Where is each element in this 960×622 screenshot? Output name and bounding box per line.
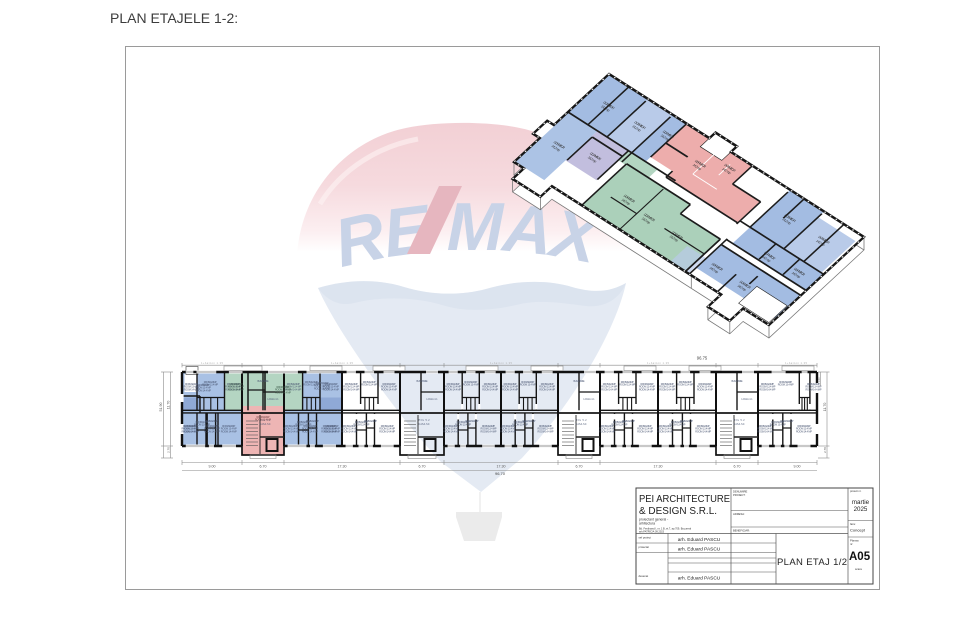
svg-text:1.40: 1.40 (817, 377, 821, 383)
svg-text:BENEFICIAR:: BENEFICIAR: (733, 529, 750, 533)
svg-text:51.90: 51.90 (159, 403, 163, 412)
svg-text:ROOM 14.4 MP: ROOM 14.4 MP (639, 388, 655, 391)
svg-text:2025: 2025 (854, 506, 868, 513)
svg-text:ROOM 14.4 MP: ROOM 14.4 MP (697, 388, 713, 391)
svg-text:ROOM 13.4 MP: ROOM 13.4 MP (512, 424, 528, 427)
svg-text:1+balcon 1.35: 1+balcon 1.35 (490, 361, 513, 365)
svg-text:arh. Eduard PASCU: arh. Eduard PASCU (678, 546, 721, 552)
svg-text:ROOM 14.4 MP: ROOM 14.4 MP (204, 430, 220, 433)
svg-text:ROOM 12.4 MP: ROOM 12.4 MP (364, 420, 377, 423)
svg-text:ROOM 14.4 MP: ROOM 14.4 MP (379, 430, 395, 433)
svg-text:ROOM 14.4 MP: ROOM 14.4 MP (757, 430, 773, 433)
svg-text:6.70: 6.70 (260, 465, 267, 469)
svg-text:96.75: 96.75 (697, 356, 708, 361)
svg-text:CASA SC: CASA SC (734, 423, 745, 426)
svg-text:scara: scara (855, 567, 862, 571)
svg-text:11.70: 11.70 (823, 403, 827, 412)
svg-text:ROOM 14.4 MP: ROOM 14.4 MP (806, 388, 822, 391)
svg-text:2.70: 2.70 (166, 447, 170, 453)
svg-text:ROOM 13.4 MP: ROOM 13.4 MP (353, 424, 369, 427)
svg-text:1+balcon 1.35: 1+balcon 1.35 (201, 361, 224, 365)
svg-text:6.70: 6.70 (419, 465, 426, 469)
svg-text:ROOM 14.4 MP: ROOM 14.4 MP (183, 430, 199, 433)
svg-text:HOL 5.2: HOL 5.2 (734, 420, 746, 422)
svg-text:ROOM 14.4 MP: ROOM 14.4 MP (502, 388, 518, 391)
svg-text:arh. Eduard PASCU: arh. Eduard PASCU (678, 575, 721, 581)
svg-text:ROOM 12.4 MP: ROOM 12.4 MP (680, 420, 693, 423)
svg-text:9.00: 9.00 (209, 465, 216, 469)
svg-text:ROOM 12.4 MP: ROOM 12.4 MP (780, 420, 793, 423)
svg-text:ROOM 13.4 MP: ROOM 13.4 MP (255, 419, 271, 422)
svg-text:arh.PATRICIA 09.2023: arh.PATRICIA 09.2023 (639, 530, 665, 533)
svg-text:nr:: nr: (850, 542, 853, 546)
svg-text:ROOM 14.4 MP: ROOM 14.4 MP (695, 430, 711, 433)
svg-text:CASA SC: CASA SC (576, 423, 587, 426)
svg-text:ROOM 12.4 MP: ROOM 12.4 MP (205, 420, 218, 423)
svg-text:ROOM 13.4 MP: ROOM 13.4 MP (361, 384, 377, 387)
svg-text:ROOM 14.4 MP: ROOM 14.4 MP (796, 430, 812, 433)
svg-text:A05: A05 (849, 551, 871, 563)
svg-text:desenat: desenat (639, 574, 649, 578)
svg-text:ROOM 12.4 MP: ROOM 12.4 MP (522, 420, 535, 423)
svg-text:ROOM 12.4 MP: ROOM 12.4 MP (306, 420, 319, 423)
svg-text:ROOM 14.4 MP: ROOM 14.4 MP (445, 388, 461, 391)
svg-text:& DESIGN S.R.L.: & DESIGN S.R.L. (639, 506, 717, 517)
svg-text:1+balcon 1.35: 1+balcon 1.35 (331, 361, 354, 365)
svg-text:ROOM 14.4 MP: ROOM 14.4 MP (381, 388, 397, 391)
svg-text:ROOM 13.4 MP: ROOM 13.4 MP (463, 384, 479, 387)
svg-text:PEI ARCHITECTURE: PEI ARCHITECTURE (639, 494, 730, 505)
svg-text:arh. Eduard PASCU: arh. Eduard PASCU (678, 537, 721, 543)
svg-text:sef proiect: sef proiect (639, 536, 652, 540)
svg-text:ROOM 13.4 MP: ROOM 13.4 MP (520, 384, 536, 387)
svg-text:BUCATARIE: BUCATARIE (258, 380, 269, 383)
svg-text:ROOM 14.4 MP: ROOM 14.4 MP (481, 430, 497, 433)
svg-text:ROOM 14.4 MP: ROOM 14.4 MP (482, 388, 498, 391)
svg-text:ROOM 14.4 MP: ROOM 14.4 MP (228, 388, 244, 391)
svg-text:LOGIA 4.1: LOGIA 4.1 (268, 398, 280, 401)
svg-text:ROOM 13.4 MP: ROOM 13.4 MP (619, 384, 635, 387)
svg-text:ROOM 14.4 MP: ROOM 14.4 MP (539, 388, 555, 391)
svg-text:1+balcon 1.35: 1+balcon 1.35 (647, 361, 670, 365)
svg-text:ROOM 14.4 MP: ROOM 14.4 MP (759, 388, 775, 391)
svg-text:LOGIA 4.1: LOGIA 4.1 (427, 398, 439, 401)
svg-text:2.70: 2.70 (823, 447, 827, 453)
svg-text:PLAN ETAJ 1/2: PLAN ETAJ 1/2 (777, 557, 847, 568)
svg-text:ROOM 14.4 MP: ROOM 14.4 MP (443, 430, 459, 433)
svg-text:ROOM 14.4 MP: ROOM 14.4 MP (500, 430, 516, 433)
svg-text:ROOM 14.4 MP: ROOM 14.4 MP (324, 430, 340, 433)
svg-text:6.70: 6.70 (576, 465, 583, 469)
svg-text:ROOM 12.4 MP: ROOM 12.4 MP (622, 420, 635, 423)
svg-text:9.00: 9.00 (794, 465, 801, 469)
svg-text:arhitectura: arhitectura (639, 522, 655, 526)
svg-text:ROOM 14.4 MP: ROOM 14.4 MP (601, 388, 617, 391)
svg-text:ROOM 14.4 MP: ROOM 14.4 MP (659, 388, 675, 391)
svg-text:BUCATARIE: BUCATARIE (732, 380, 743, 383)
svg-text:ROOM 14.4 MP: ROOM 14.4 MP (195, 389, 211, 392)
svg-text:LOGIA 4.1: LOGIA 4.1 (584, 398, 596, 401)
svg-text:ROOM 14.4 MP: ROOM 14.4 MP (538, 430, 554, 433)
svg-text:17.30: 17.30 (497, 465, 506, 469)
svg-text:ROOM 14.4 MP: ROOM 14.4 MP (637, 430, 653, 433)
svg-text:96.70: 96.70 (495, 471, 506, 476)
svg-text:BUCATARIE: BUCATARIE (417, 380, 428, 383)
svg-text:ROOM 14.4 MP: ROOM 14.4 MP (343, 388, 359, 391)
svg-text:ROOM 13.4 MP: ROOM 13.4 MP (455, 424, 471, 427)
svg-text:proiectat: proiectat (639, 545, 650, 549)
svg-text:1+balcon 1.35: 1+balcon 1.35 (785, 361, 808, 365)
svg-text:PROIECT:: PROIECT: (733, 493, 746, 497)
svg-text:Concept: Concept (850, 528, 866, 533)
svg-text:ROOM 13.4 MP: ROOM 13.4 MP (669, 424, 685, 427)
svg-text:17.30: 17.30 (654, 465, 663, 469)
svg-text:6.70: 6.70 (734, 465, 741, 469)
svg-text:HOL 5.2: HOL 5.2 (576, 420, 588, 422)
svg-text:PLAN ETAJELE 1-2:: PLAN ETAJELE 1-2: (110, 10, 238, 26)
svg-text:proiect nr.: proiect nr. (850, 489, 862, 493)
svg-text:ROOM 14.4 MP: ROOM 14.4 MP (302, 430, 318, 433)
svg-text:ROOM 14.4 MP: ROOM 14.4 MP (221, 430, 237, 433)
svg-text:ROOM 14.4 MP: ROOM 14.4 MP (599, 430, 615, 433)
svg-text:ROOM 13.4 MP: ROOM 13.4 MP (677, 384, 693, 387)
svg-text:LOGIA 4.1: LOGIA 4.1 (742, 398, 754, 401)
svg-text:BUCATARIE: BUCATARIE (574, 380, 585, 383)
svg-text:HOL 5.2: HOL 5.2 (419, 420, 431, 422)
svg-text:ROOM 13.4 MP: ROOM 13.4 MP (778, 384, 794, 387)
svg-text:CASA SC: CASA SC (419, 423, 430, 426)
svg-text:ROOM 14.4 MP: ROOM 14.4 MP (657, 430, 673, 433)
svg-text:17.30: 17.30 (338, 465, 347, 469)
svg-text:ROOM 14.4 MP: ROOM 14.4 MP (275, 391, 291, 394)
svg-text:ROOM 13.4 MP: ROOM 13.4 MP (770, 424, 786, 427)
svg-text:ROOM 14.4 MP: ROOM 14.4 MP (283, 430, 299, 433)
svg-text:ADRESA:: ADRESA: (733, 512, 745, 516)
svg-text:ROOM 14.4 MP: ROOM 14.4 MP (341, 430, 357, 433)
svg-text:ROOM 13.4 MP: ROOM 13.4 MP (611, 424, 627, 427)
svg-text:faza:: faza: (850, 522, 856, 526)
svg-text:ROOM 12.4 MP: ROOM 12.4 MP (465, 420, 478, 423)
svg-text:martie: martie (852, 499, 870, 506)
svg-text:11.70: 11.70 (166, 401, 170, 410)
svg-text:CASA SC: CASA SC (260, 423, 271, 426)
svg-text:ROOM 14.4 MP: ROOM 14.4 MP (314, 387, 330, 390)
